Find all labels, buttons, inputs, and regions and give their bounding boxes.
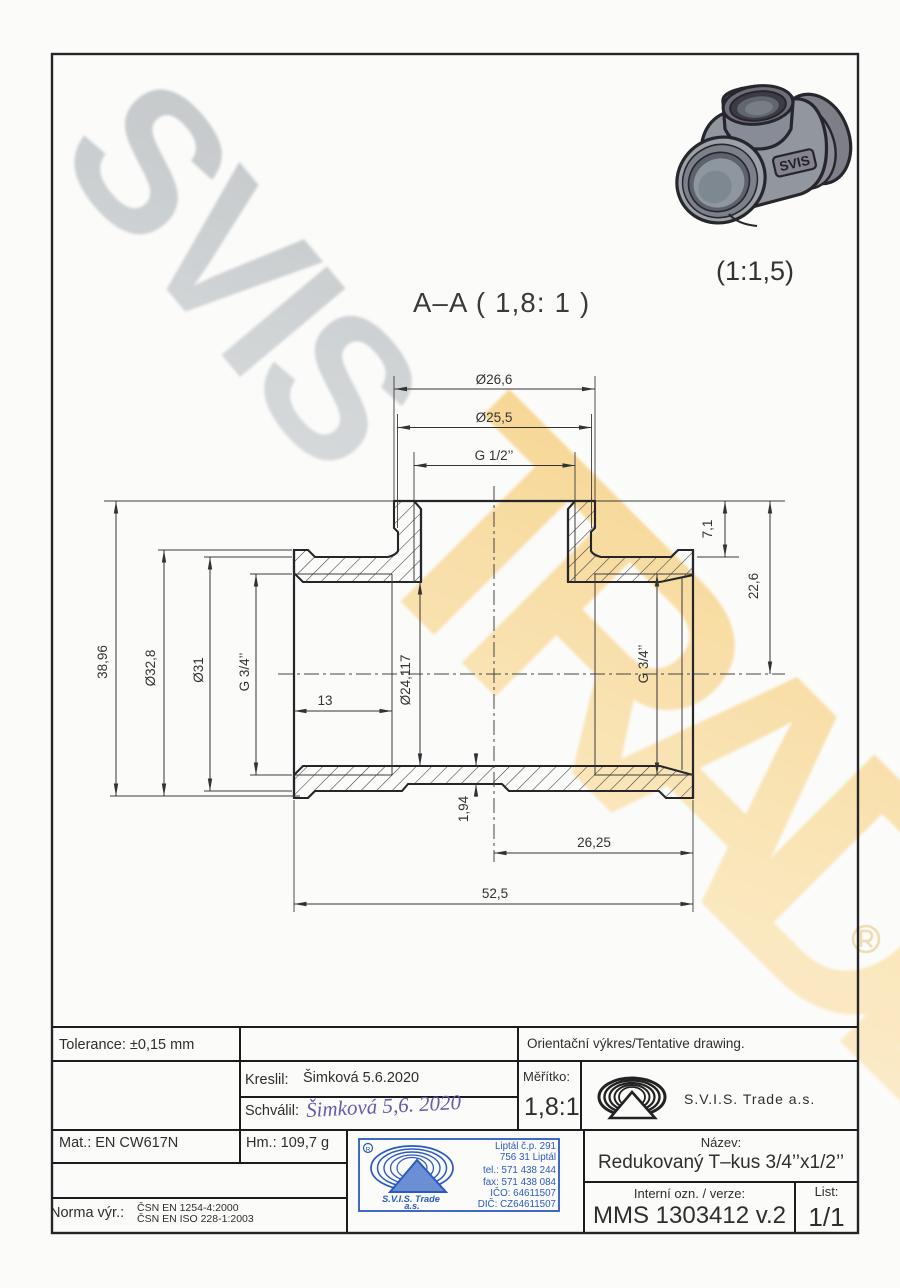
- svg-text:SVIS: SVIS: [20, 38, 462, 504]
- svg-text:Ø32,8: Ø32,8: [143, 650, 158, 687]
- svg-text:G 1/2’’: G 1/2’’: [475, 448, 514, 463]
- svg-text:13: 13: [317, 693, 332, 708]
- svg-text:DIČ: CZ64611507: DIČ: CZ64611507: [478, 1199, 556, 1210]
- svg-text:A–A ( 1,8: 1 ): A–A ( 1,8: 1 ): [413, 287, 590, 318]
- svg-text:a.s.: a.s.: [404, 1201, 419, 1211]
- svg-text:26,25: 26,25: [577, 835, 611, 850]
- svg-text:38,96: 38,96: [95, 645, 110, 679]
- svg-text:Ø25,5: Ø25,5: [476, 410, 513, 425]
- svg-text:Ø24,117: Ø24,117: [398, 655, 413, 706]
- svg-text:7,1: 7,1: [700, 520, 715, 539]
- svg-text:IČO: 64611507: IČO: 64611507: [490, 1188, 556, 1199]
- svg-text:Ø31: Ø31: [191, 657, 206, 683]
- svg-text:Liptál č.p. 291: Liptál č.p. 291: [495, 1141, 556, 1152]
- svg-text:52,5: 52,5: [482, 886, 508, 901]
- svg-text:fax: 571 438 084: fax: 571 438 084: [483, 1177, 557, 1188]
- svg-text:tel.: 571 438 244: tel.: 571 438 244: [483, 1165, 557, 1176]
- svg-text:1,94: 1,94: [456, 795, 471, 822]
- svg-text:Ø26,6: Ø26,6: [476, 372, 513, 387]
- svg-text:G 3/4’’: G 3/4’’: [237, 653, 252, 692]
- svg-text:R: R: [366, 1147, 371, 1154]
- svg-text:22,6: 22,6: [746, 573, 761, 599]
- svg-text:G 3/4’’: G 3/4’’: [636, 645, 651, 684]
- svg-text:756 31 Liptál: 756 31 Liptál: [500, 1152, 556, 1163]
- svg-text:(1:1,5): (1:1,5): [716, 256, 794, 286]
